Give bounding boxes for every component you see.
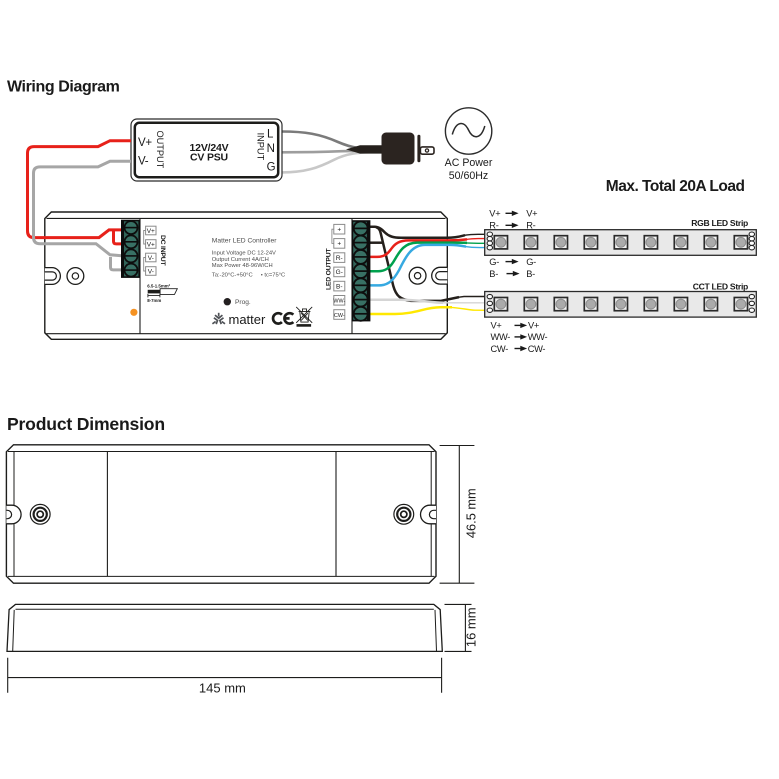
svg-text:B-: B- <box>489 269 498 279</box>
svg-text:V+: V+ <box>138 137 152 149</box>
svg-text:DC INPUT: DC INPUT <box>159 235 166 267</box>
svg-text:V+: V+ <box>528 321 539 331</box>
svg-text:WW-: WW- <box>333 299 345 305</box>
svg-text:RGB LED Strip: RGB LED Strip <box>691 218 748 228</box>
svg-text:Wiring Diagram: Wiring Diagram <box>7 78 120 95</box>
svg-text:CW-: CW- <box>334 313 345 319</box>
svg-text:R-: R- <box>526 221 535 231</box>
svg-text:V-: V- <box>138 155 149 167</box>
svg-text:8-7mm: 8-7mm <box>147 298 161 303</box>
svg-text:G-: G- <box>336 269 343 276</box>
svg-text:Product Dimension: Product Dimension <box>7 414 165 434</box>
svg-text:G: G <box>267 162 276 174</box>
svg-text:+: + <box>337 227 341 234</box>
svg-text:+: + <box>337 241 341 248</box>
svg-text:Max. Total 20A Load: Max. Total 20A Load <box>606 178 745 195</box>
svg-text:L: L <box>267 129 274 141</box>
svg-text:CCT LED Strip: CCT LED Strip <box>693 281 748 291</box>
svg-text:B-: B- <box>526 269 535 279</box>
svg-text:6.5-1.5mm²: 6.5-1.5mm² <box>147 283 170 288</box>
svg-text:G-: G- <box>489 257 499 267</box>
svg-text:V-: V- <box>148 255 154 262</box>
svg-text:WW-: WW- <box>528 332 548 342</box>
svg-text:OUTPUT: OUTPUT <box>155 131 165 169</box>
svg-text:V+: V+ <box>491 321 502 331</box>
svg-text:V+: V+ <box>147 228 155 235</box>
svg-text:16 mm: 16 mm <box>463 607 478 647</box>
svg-text:Input Voltage DC 12-24V: Input Voltage DC 12-24V <box>212 251 276 257</box>
svg-text:INPUT: INPUT <box>256 133 266 161</box>
svg-text:CW-: CW- <box>528 344 546 354</box>
svg-text:G-: G- <box>526 257 536 267</box>
svg-text:R-: R- <box>336 255 343 262</box>
svg-text:V-: V- <box>148 268 154 275</box>
svg-text:46.5 mm: 46.5 mm <box>464 488 479 538</box>
svg-text:V+: V+ <box>147 241 155 248</box>
svg-text:B-: B- <box>336 283 343 290</box>
svg-text:R-: R- <box>489 221 498 231</box>
svg-text:50/60Hz: 50/60Hz <box>449 170 488 182</box>
svg-text:CW-: CW- <box>491 344 509 354</box>
svg-text:N: N <box>267 143 275 155</box>
svg-text:V+: V+ <box>489 209 500 219</box>
svg-text:Ta:-20°C-+50°C • tc=75°C: Ta:-20°C-+50°C • tc=75°C <box>212 273 285 279</box>
svg-text:matter: matter <box>229 312 267 327</box>
svg-text:V+: V+ <box>526 209 537 219</box>
svg-text:WW-: WW- <box>491 332 511 342</box>
svg-text:Output Current 4A/CH: Output Current 4A/CH <box>212 257 269 263</box>
svg-text:Matter LED Controller: Matter LED Controller <box>212 238 277 245</box>
svg-text:LED OUTPUT: LED OUTPUT <box>325 248 332 290</box>
svg-text:AC Power: AC Power <box>445 157 493 169</box>
svg-text:145 mm: 145 mm <box>199 680 246 695</box>
svg-text:Max Power 48-96W/CH: Max Power 48-96W/CH <box>212 263 273 269</box>
svg-text:CV PSU: CV PSU <box>190 151 228 163</box>
svg-text:Prog.: Prog. <box>235 299 251 306</box>
